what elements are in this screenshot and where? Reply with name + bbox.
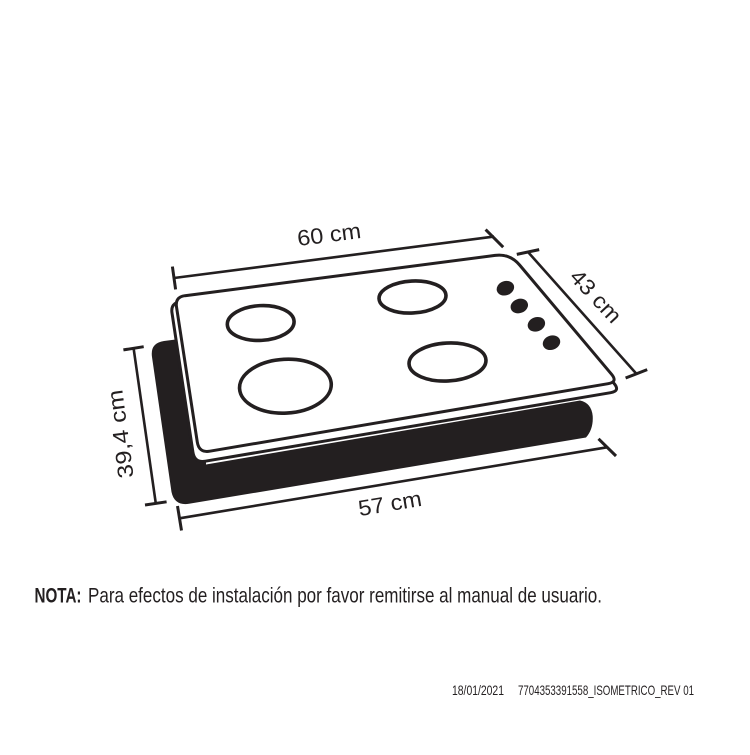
svg-text:18/01/2021: 18/01/2021 <box>452 683 504 698</box>
svg-text:7704353391558_ISOMETRICO_REV 0: 7704353391558_ISOMETRICO_REV 01 <box>518 683 694 698</box>
svg-text:NOTA:Para efectos de instalaci: NOTA:Para efectos de instalación por fav… <box>35 585 603 608</box>
